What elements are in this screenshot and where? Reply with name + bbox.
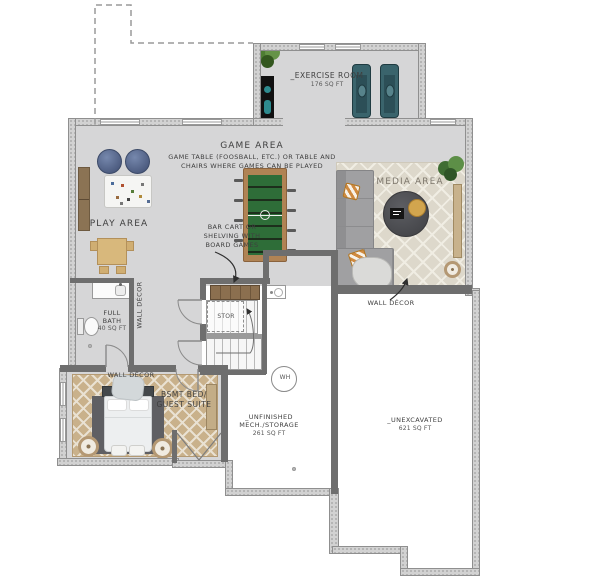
hall-door-arc: [178, 300, 202, 324]
media-area-label: MEDIA AREA: [376, 177, 443, 187]
wall-decor-label-bedroom: WALL DÉCOR: [107, 372, 154, 379]
game-area-note-2: CHAIRS WHERE GAMES CAN BE PLAYED: [181, 163, 323, 170]
wall-decor-arrow: [390, 279, 407, 300]
bsmt-bed-label-2: GUEST SUITE: [156, 401, 211, 410]
bar-cart-note-3: BOARD GAMES: [205, 242, 258, 249]
unexcavated-label: _UNEXCAVATED: [387, 417, 442, 424]
wall-decor-label-media: WALL DÉCOR: [367, 300, 414, 307]
hall-door-arc: [178, 341, 202, 365]
bar-cart-note-1: BAR CART OR: [208, 224, 257, 231]
mech-label-2: MECH./STORAGE: [239, 422, 298, 429]
exercise-room-sqft: 176 SQ FT: [311, 82, 344, 89]
game-area-label: GAME AREA: [220, 141, 284, 151]
play-area-label: PLAY AREA: [90, 219, 149, 229]
game-area-note-1: GAME TABLE (FOOSBALL, ETC.) OR TABLE AND: [168, 154, 335, 161]
basement-floor-plan: WH: [0, 0, 600, 584]
full-bath-sqft: 40 SQ FT: [98, 326, 127, 333]
mech-sqft: 261 SQ FT: [253, 431, 286, 438]
closet-double-doors: [177, 433, 221, 460]
bar-cart-note-2: SHELVING WITH: [204, 233, 261, 240]
bsmt-bed-label-1: BSMT BED/: [161, 391, 207, 400]
bar-cart-arrow: [215, 252, 236, 282]
exercise-room-label: _EXERCISE ROOM: [290, 72, 363, 81]
bath-door-arc: [106, 345, 128, 367]
wall-decor-label-bath: WALL DÉCOR: [136, 281, 143, 328]
bedroom-door-arc: [176, 369, 198, 391]
porch-dashed-outline: [95, 5, 253, 124]
stor-label: STOR: [217, 314, 234, 321]
unexcavated-sqft: 621 SQ FT: [399, 426, 432, 433]
annotation-overlay: [0, 0, 600, 584]
